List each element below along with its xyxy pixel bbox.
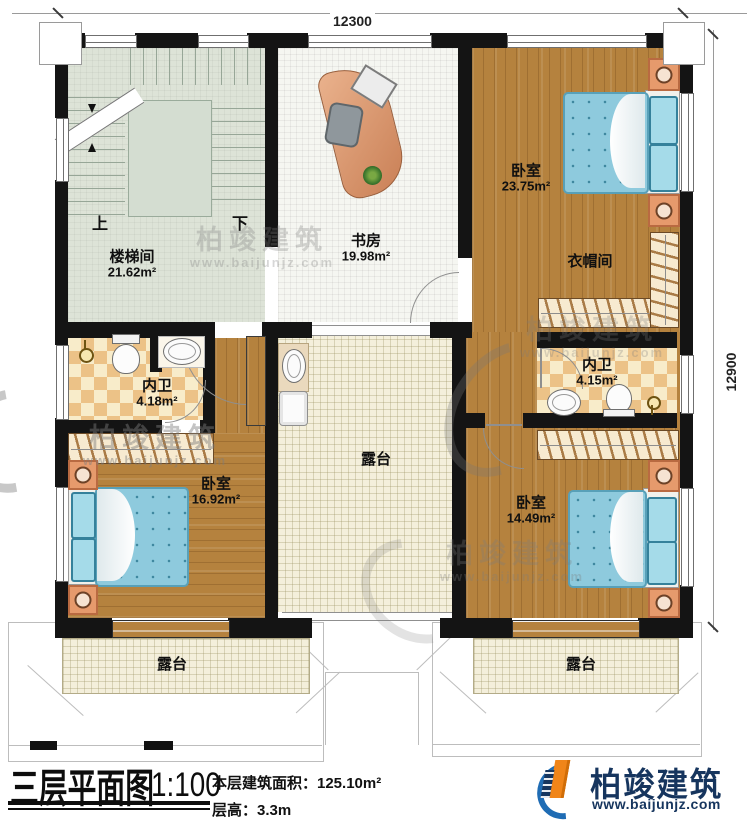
brand-url: www.baijunjz.com (592, 796, 721, 812)
dimension-line-right (713, 30, 714, 630)
sink (163, 338, 201, 365)
corner-annotation-box (39, 22, 82, 65)
wall (228, 618, 312, 638)
roof-eave-mark (144, 741, 173, 750)
window (681, 355, 694, 414)
floor-area-text: 本层建筑面积：125.10m² (212, 772, 381, 793)
wall (638, 618, 693, 638)
towel-stem (651, 405, 653, 415)
dimension-right-value: 12900 (723, 339, 739, 405)
wall (430, 33, 507, 48)
stair-arrow-down (88, 143, 96, 152)
title-underline (8, 808, 210, 810)
toilet-tank (603, 409, 635, 417)
wardrobe (650, 232, 679, 328)
nightstand (648, 194, 680, 227)
bed-pillow (649, 96, 678, 145)
room-label-bath-east: 内卫4.15m² (576, 357, 617, 386)
towel-ring (647, 396, 661, 410)
room-label-terrace-center: 露台 (361, 452, 391, 468)
plan-scale: 1:100 (151, 766, 221, 805)
bed-sheet (610, 94, 645, 188)
watermark: 柏竣建筑www.baijunjz.com (83, 424, 227, 468)
watermark: 柏竣建筑www.baijunjz.com (190, 226, 334, 270)
window (308, 35, 432, 48)
dimension-line-top (12, 13, 747, 14)
bed-pillow (649, 144, 678, 192)
plant (363, 166, 382, 185)
window (56, 345, 69, 420)
window (85, 35, 137, 48)
laundry-sink (282, 349, 306, 383)
sliding-door (512, 620, 640, 638)
bed-pillow (71, 538, 96, 582)
roof-ridge-right (432, 744, 700, 745)
stair-arrow-up (88, 104, 96, 113)
wall (247, 33, 308, 48)
wall (680, 190, 693, 355)
room-label-terrace-se: 露台 (566, 657, 596, 673)
room-label-bedroom-se: 卧室14.49m² (507, 495, 555, 524)
dimension-top-value: 12300 (330, 13, 375, 29)
stair-landing (128, 100, 212, 217)
roof-eave-mark (30, 741, 57, 750)
room-label-bedroom-sw: 卧室16.92m² (192, 476, 240, 505)
sliding-door-terrace (312, 325, 430, 336)
wall (680, 412, 693, 488)
room-label-stairwell: 楼梯间21.62m² (108, 249, 156, 278)
room-label-study: 书房19.98m² (342, 233, 390, 262)
bed-pillow (71, 492, 96, 539)
room-label-cloakroom: 衣帽间 (567, 254, 612, 270)
washing-machine (279, 391, 308, 426)
window (507, 35, 647, 48)
office-chair (324, 101, 365, 148)
nightstand (68, 585, 98, 615)
floor-plan-page: { "dimensions": { "top": "12300", "right… (0, 0, 750, 827)
wall (265, 322, 278, 618)
room-label-bath-west: 内卫4.18m² (136, 378, 177, 407)
brand-logo: 柏竣建筑 www.baijunjz.com (538, 756, 738, 816)
bed-sheet (610, 492, 643, 582)
nightstand (648, 588, 680, 618)
towel-stem (84, 340, 86, 349)
room-label-terrace-sw: 露台 (157, 657, 187, 673)
bed-pillow (647, 541, 677, 585)
bed-pillow (647, 497, 677, 543)
roof-valley-top (325, 672, 418, 673)
window (198, 35, 249, 48)
title-underline (8, 801, 210, 805)
corner-annotation-box (663, 22, 705, 65)
wardrobe (537, 430, 679, 460)
plan-title: 三层平面图 (10, 756, 154, 814)
floor-height-text: 层高：3.3m (212, 799, 291, 820)
wall (55, 618, 112, 638)
toilet (112, 344, 140, 374)
stair-treads-top (130, 48, 265, 85)
stair-up-label: 上 (92, 210, 108, 234)
sliding-door (112, 620, 230, 638)
window (56, 118, 69, 182)
roof-valley-side-a (325, 672, 326, 745)
window (681, 488, 694, 587)
door-leaf-wing-west (246, 336, 266, 426)
window (681, 93, 694, 192)
wall (458, 48, 472, 258)
stair-treads-right (210, 100, 265, 200)
wall (265, 48, 278, 247)
toilet-tank (112, 334, 140, 344)
towel-ring (79, 348, 94, 363)
wall (135, 33, 198, 48)
wall (55, 180, 68, 345)
nightstand (648, 460, 680, 492)
room-label-bedroom-ne: 卧室23.75m² (502, 163, 550, 192)
roof-valley-side-b (418, 672, 419, 745)
